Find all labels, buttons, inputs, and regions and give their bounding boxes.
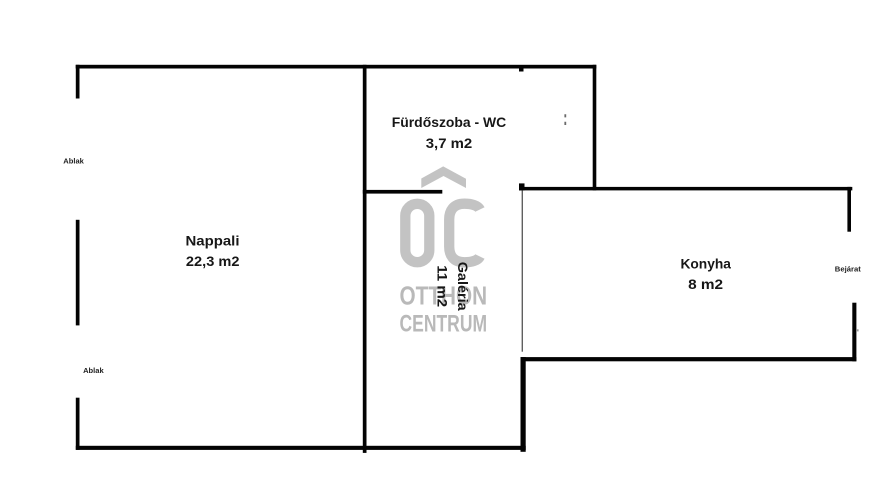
svg-text:Bejárat: Bejárat <box>835 265 862 274</box>
svg-text:Nappali: Nappali <box>186 233 240 249</box>
svg-text:Fürdőszoba - WC: Fürdőszoba - WC <box>392 114 507 130</box>
svg-text:Konyha: Konyha <box>680 255 731 271</box>
svg-text:8 m2: 8 m2 <box>688 276 723 292</box>
svg-text:3,7 m2: 3,7 m2 <box>426 135 473 151</box>
svg-text:Ablak: Ablak <box>83 366 104 375</box>
svg-text:CENTRUM: CENTRUM <box>400 310 488 337</box>
svg-text:Ablak: Ablak <box>63 156 84 165</box>
svg-text:22,3 m2: 22,3 m2 <box>186 253 240 269</box>
